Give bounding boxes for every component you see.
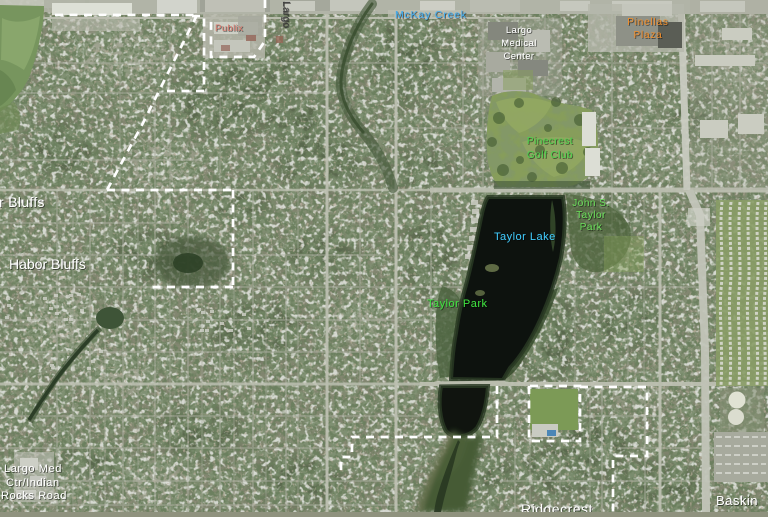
- svg-text:r Bluffs: r Bluffs: [0, 194, 45, 210]
- svg-text:Habor Bluffs: Habor Bluffs: [9, 256, 86, 272]
- svg-text:Largo Med: Largo Med: [4, 463, 62, 475]
- svg-text:Plaza: Plaza: [633, 30, 662, 41]
- svg-text:Taylor Park: Taylor Park: [427, 298, 488, 310]
- svg-text:Park: Park: [580, 222, 603, 233]
- svg-text:Pinecrest: Pinecrest: [527, 136, 573, 147]
- svg-text:Medical: Medical: [501, 38, 537, 49]
- svg-text:Ridgecrest: Ridgecrest: [521, 501, 593, 512]
- svg-text:John S.: John S.: [572, 198, 609, 209]
- svg-text:Rocks Road: Rocks Road: [1, 490, 67, 502]
- svg-text:Ctr/Indian: Ctr/Indian: [6, 477, 60, 489]
- svg-text:Taylor: Taylor: [576, 210, 606, 221]
- svg-text:Center: Center: [504, 51, 535, 62]
- svg-text:Taylor Lake: Taylor Lake: [494, 231, 556, 243]
- svg-text:Largo: Largo: [506, 25, 532, 36]
- svg-text:Publix: Publix: [215, 23, 243, 34]
- svg-text:Golf Club: Golf Club: [527, 150, 573, 161]
- svg-text:Pinellas: Pinellas: [627, 17, 668, 28]
- svg-text:Baskin: Baskin: [716, 493, 758, 508]
- svg-text:Largo: Largo: [280, 1, 292, 28]
- svg-text:McKay Creek: McKay Creek: [395, 9, 467, 21]
